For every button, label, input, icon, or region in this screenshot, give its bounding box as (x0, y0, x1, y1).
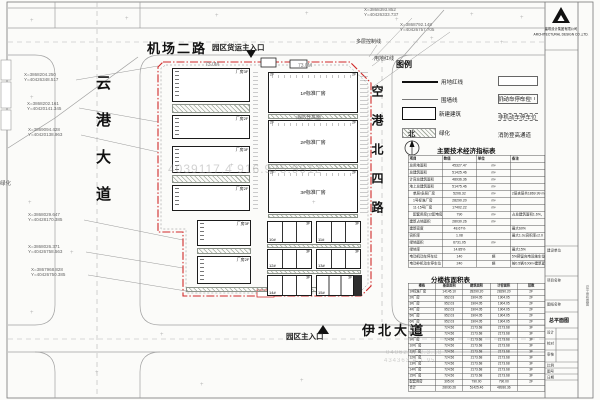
survey-cross: + (200, 382, 204, 388)
survey-cross: + (305, 11, 309, 17)
car-parking-swatch (498, 76, 538, 86)
survey-cross: + (95, 370, 99, 376)
survey-cross: + (430, 36, 434, 42)
fire-lane-strip (268, 214, 358, 218)
unit-cluster-14: 14# 3F (267, 275, 312, 296)
drawing-name: 总平面图 (549, 316, 569, 324)
building-label: 厂房2F (235, 116, 248, 122)
dock-ticks (175, 118, 179, 136)
survey-cross: + (160, 332, 164, 338)
review-label: 审核 (547, 352, 554, 357)
factory-building-left-1: 厂房3F (172, 68, 250, 102)
floor-label: 3F (306, 276, 310, 280)
building-name: 1#标准厂房 (300, 89, 325, 96)
parking-ticks (360, 72, 368, 214)
survey-cross: + (215, 13, 219, 19)
floor-label: 3F (306, 250, 310, 254)
green-strip (197, 248, 251, 254)
dock-ticks (200, 259, 204, 281)
dimension-label: 73.0M (298, 63, 312, 69)
factory-building-left-2: 厂房2F (172, 115, 250, 139)
standard-factory-1: 2F 2F 1#标准厂房 (268, 72, 358, 113)
siteplan-sheet: 厂房3F 厂房2F 厂房3F 厂房2F 厂房3F 厂房2F 2F 2F 1#标准… (0, 0, 600, 400)
unit-label: 13# (318, 264, 325, 269)
floor-label: 3F (348, 276, 352, 280)
survey-cross: + (30, 95, 34, 101)
survey-cross: + (398, 332, 402, 338)
company-logo (552, 7, 570, 23)
north-label: 北 (408, 129, 415, 139)
redline-swatch (402, 81, 438, 83)
dock-ticks (175, 188, 179, 208)
coordinate-callout: X=3868393.852Y=40426333.737 (364, 7, 398, 17)
coordinate-callout: X=3868792.148Y=40426757.705 (400, 22, 434, 32)
main-table-title: 主要技术经济指标表 (437, 145, 496, 155)
column-grid-ticks (272, 75, 354, 78)
side-vertical-text: 总平面布置图 (585, 285, 590, 306)
coordinate-callout: X=3868026.371Y=40426758.563 (28, 244, 62, 254)
watermark: 434363.4 1.95 (384, 358, 435, 364)
parking-ticks (253, 72, 258, 212)
date-label: 日期 (547, 375, 554, 380)
company-name-en: ARCHITECTURAL DESIGN CO.,LTD. (534, 33, 589, 37)
road-label-left: 云港大道 (92, 75, 113, 223)
survey-cross: + (125, 16, 129, 22)
main-indicators-table: 项目数值单位备注总用地面积45327.47m²总建筑面积51425.46m²计容… (408, 155, 545, 268)
unit-label: 14# (269, 291, 276, 296)
check-label: 校对 (547, 341, 554, 346)
standard-factory-3: 2F 2F 3#标准厂房 (268, 170, 358, 213)
unit-cluster-12: 12# 3F (267, 249, 312, 269)
green-strip (267, 270, 361, 274)
road-label-top: 机场二路 (147, 38, 207, 57)
survey-cross: + (70, 250, 74, 256)
unit-label: 10# (269, 238, 276, 243)
floor-label: 3F (306, 222, 310, 226)
building-label: 厂房3F (235, 147, 248, 153)
unit-cluster-15: 15# 3F (316, 275, 354, 296)
floor-label: 2F (352, 121, 356, 125)
no-label: 图号 (547, 369, 554, 374)
building-area-table: 楼栋基底面积建筑面积计容面积层数1#标准厂房14145.1028290.2028… (408, 283, 545, 392)
floor-label: 2F (352, 73, 356, 77)
client-label: 建设单位 (547, 248, 561, 253)
legend-item: 新建建筑 (402, 105, 483, 117)
coordinate-callout: X=3868202.161Y=40420141.345 (27, 101, 61, 111)
coordinate-callout: X=3867968.828Y=40426750.385 (31, 267, 65, 277)
watermark: 4039117.4 916.975.9912 (168, 162, 323, 176)
new-building-swatch (402, 107, 436, 120)
floor-label: 2F (352, 171, 356, 175)
building-label: 厂房2F (236, 257, 249, 263)
factory-building-left-6: 厂房2F (197, 256, 251, 284)
watermark: 04062/W 2.3.18 (386, 350, 442, 356)
coordinate-callout: X=3868029.647Y=40428170.385 (28, 212, 62, 222)
coordinate-callout: X=3868204.250Y=40426348.517 (24, 72, 58, 82)
survey-cross: + (30, 18, 34, 24)
project-label: 项目名称 (547, 278, 561, 283)
wall-swatch (402, 99, 438, 100)
column-grid-ticks (272, 123, 354, 126)
road-label-right: 空港北四路 (369, 85, 386, 230)
red-line-label: 用地红线 (374, 54, 394, 62)
legend-item: 围墙线 (402, 91, 474, 103)
control-line-label: 多层控制线 (356, 37, 381, 45)
coordinate-callout: X=3869094.428Y=40420138.963 (28, 127, 62, 137)
floor-label: 2F (270, 73, 274, 77)
legend-item: 非机动车停车位 (498, 90, 600, 102)
survey-cross: + (395, 17, 399, 23)
company-name: 建筑设计集团有限公司 (545, 26, 578, 31)
building-label: 厂房3F (235, 69, 248, 75)
drawing-label: 图纸名称 (547, 302, 561, 307)
main-entrance-label: 园区主入口 (286, 331, 324, 342)
unit-cluster-10: 10# 3F (267, 221, 312, 243)
unit-cluster-13: 13# 3F (316, 249, 361, 269)
bike-parking-swatch (498, 94, 538, 104)
freight-entrance-label: 园区货运主入口 (212, 42, 265, 53)
dock-ticks (175, 71, 179, 99)
legend-item: 机动车停车位 (498, 72, 600, 84)
factory-building-left-5: 厂房3F (197, 220, 251, 246)
building-label: 厂房2F (235, 186, 248, 192)
legend-title: 图例 (396, 59, 412, 70)
utility-block (354, 275, 362, 296)
legend-item: 消防登高通道 (498, 108, 600, 120)
survey-cross: + (500, 40, 504, 46)
legend-item: 用地红线 (402, 73, 485, 85)
fire-lane-label: 消防登高面 (296, 113, 321, 121)
dock-ticks (200, 223, 204, 243)
design-label: 设计 (547, 330, 554, 335)
survey-cross: + (28, 200, 32, 206)
green-strip (267, 244, 361, 248)
building-name: 3#标准厂房 (300, 188, 325, 195)
survey-cross: + (312, 200, 316, 206)
margin-green-label: 绿化 (0, 179, 11, 187)
scale-label: 比例 (547, 363, 554, 368)
unit-label: 11# (318, 238, 324, 243)
fire-lane-swatch (498, 113, 538, 121)
floor-label: 2F (270, 121, 274, 125)
green-strip (172, 104, 250, 113)
building-label: 厂房3F (236, 221, 249, 227)
survey-cross: + (470, 12, 474, 18)
floor-label: 3F (355, 222, 359, 226)
unit-label: 15# (318, 291, 325, 296)
margin-stamp-boxes (1, 60, 11, 130)
factory-building-left-4: 厂房2F (172, 185, 250, 211)
survey-cross: + (520, 15, 524, 21)
survey-cross: + (230, 163, 234, 169)
unit-label: 12# (269, 264, 276, 269)
survey-cross: + (30, 310, 34, 316)
north-arrow-icon (405, 140, 419, 155)
standard-factory-2: 2F 2F 2#标准厂房 (268, 120, 358, 163)
floor-label: 3F (355, 250, 359, 254)
unit-cluster-11: 11# 3F (316, 221, 361, 243)
building-name: 2#标准厂房 (300, 138, 325, 145)
green-strip (172, 175, 250, 183)
survey-cross: + (300, 378, 304, 384)
dimension-label: 73.0M (205, 62, 219, 68)
